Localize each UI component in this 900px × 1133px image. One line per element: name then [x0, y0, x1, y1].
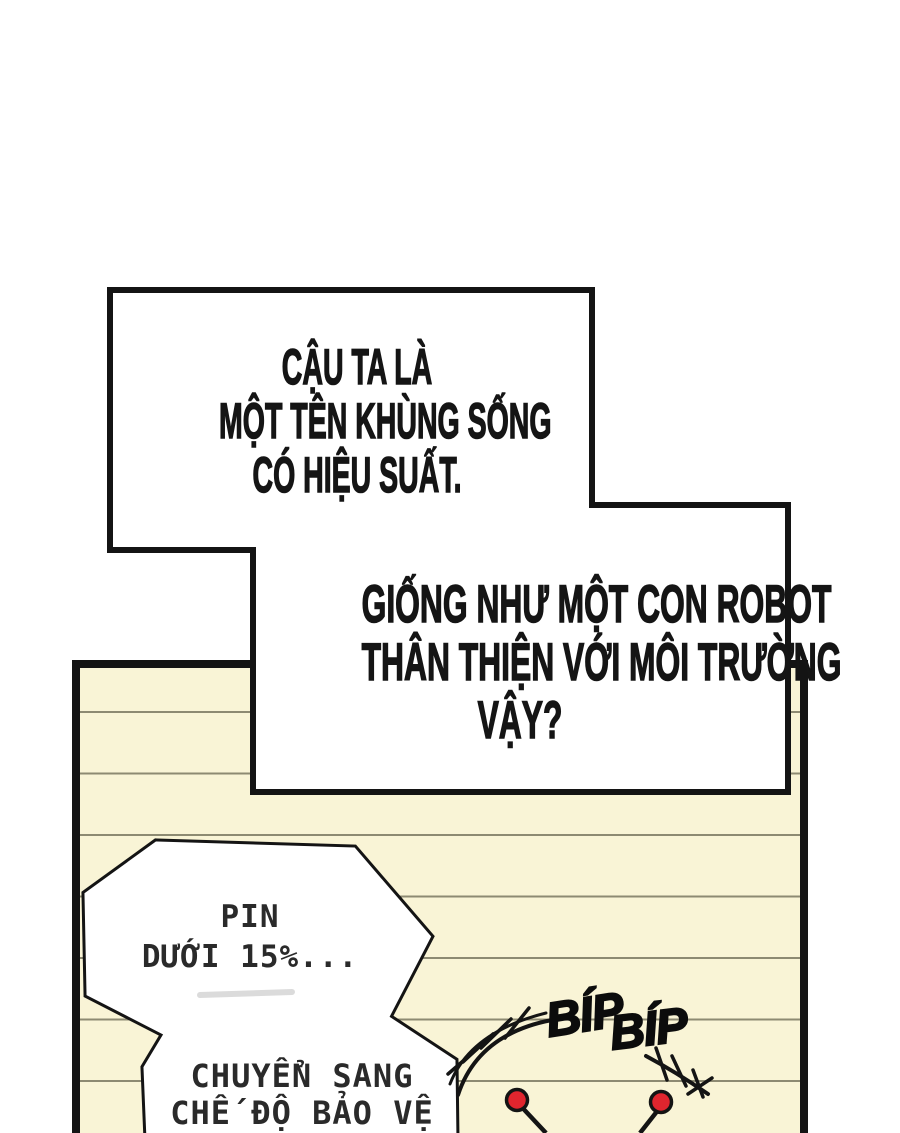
narration-box-1: CẬU TA LÀ MỘT TÊN KHÙNG SỐNG CÓ HIỆU SUẤ…	[115, 340, 599, 502]
narration-box-2: GIỐNG NHƯ MỘT CON ROBOT THÂN THIỆN VỚI M…	[256, 576, 784, 750]
antenna-tip-right-icon	[651, 1092, 672, 1113]
narration-line: CẬU TA LÀ	[219, 340, 495, 394]
robot-bubble-text-upper: PIN DƯỚI 15%...	[90, 897, 410, 977]
robot-speech-line: CHUYỂN SANG	[142, 1058, 462, 1095]
robot-speech-line: CHẾ ĐỘ BẢO VỆ	[142, 1095, 462, 1132]
comic-page: CẬU TA LÀ MỘT TÊN KHÙNG SỐNG CÓ HIỆU SUẤ…	[0, 0, 900, 1133]
narration-line: GIỐNG NHƯ MỘT CON ROBOT	[362, 576, 679, 634]
antenna-tip-left-icon	[507, 1090, 528, 1111]
sfx-beep-word: BÍP	[607, 998, 690, 1062]
narration-line: THÂN THIỆN VỚI MÔI TRƯỜNG	[362, 634, 679, 692]
narration-line: MỘT TÊN KHÙNG SỐNG	[219, 394, 495, 448]
narration-line: CÓ HIỆU SUẤT.	[219, 448, 495, 502]
narration-line: VẬY?	[362, 692, 679, 750]
robot-speech-line: PIN	[90, 897, 410, 937]
pencil-smudge	[200, 992, 292, 995]
robot-speech-line: DƯỚI 15%...	[90, 937, 410, 977]
robot-bubble-text-lower: CHUYỂN SANG CHẾ ĐỘ BẢO VỆ	[142, 1058, 462, 1132]
